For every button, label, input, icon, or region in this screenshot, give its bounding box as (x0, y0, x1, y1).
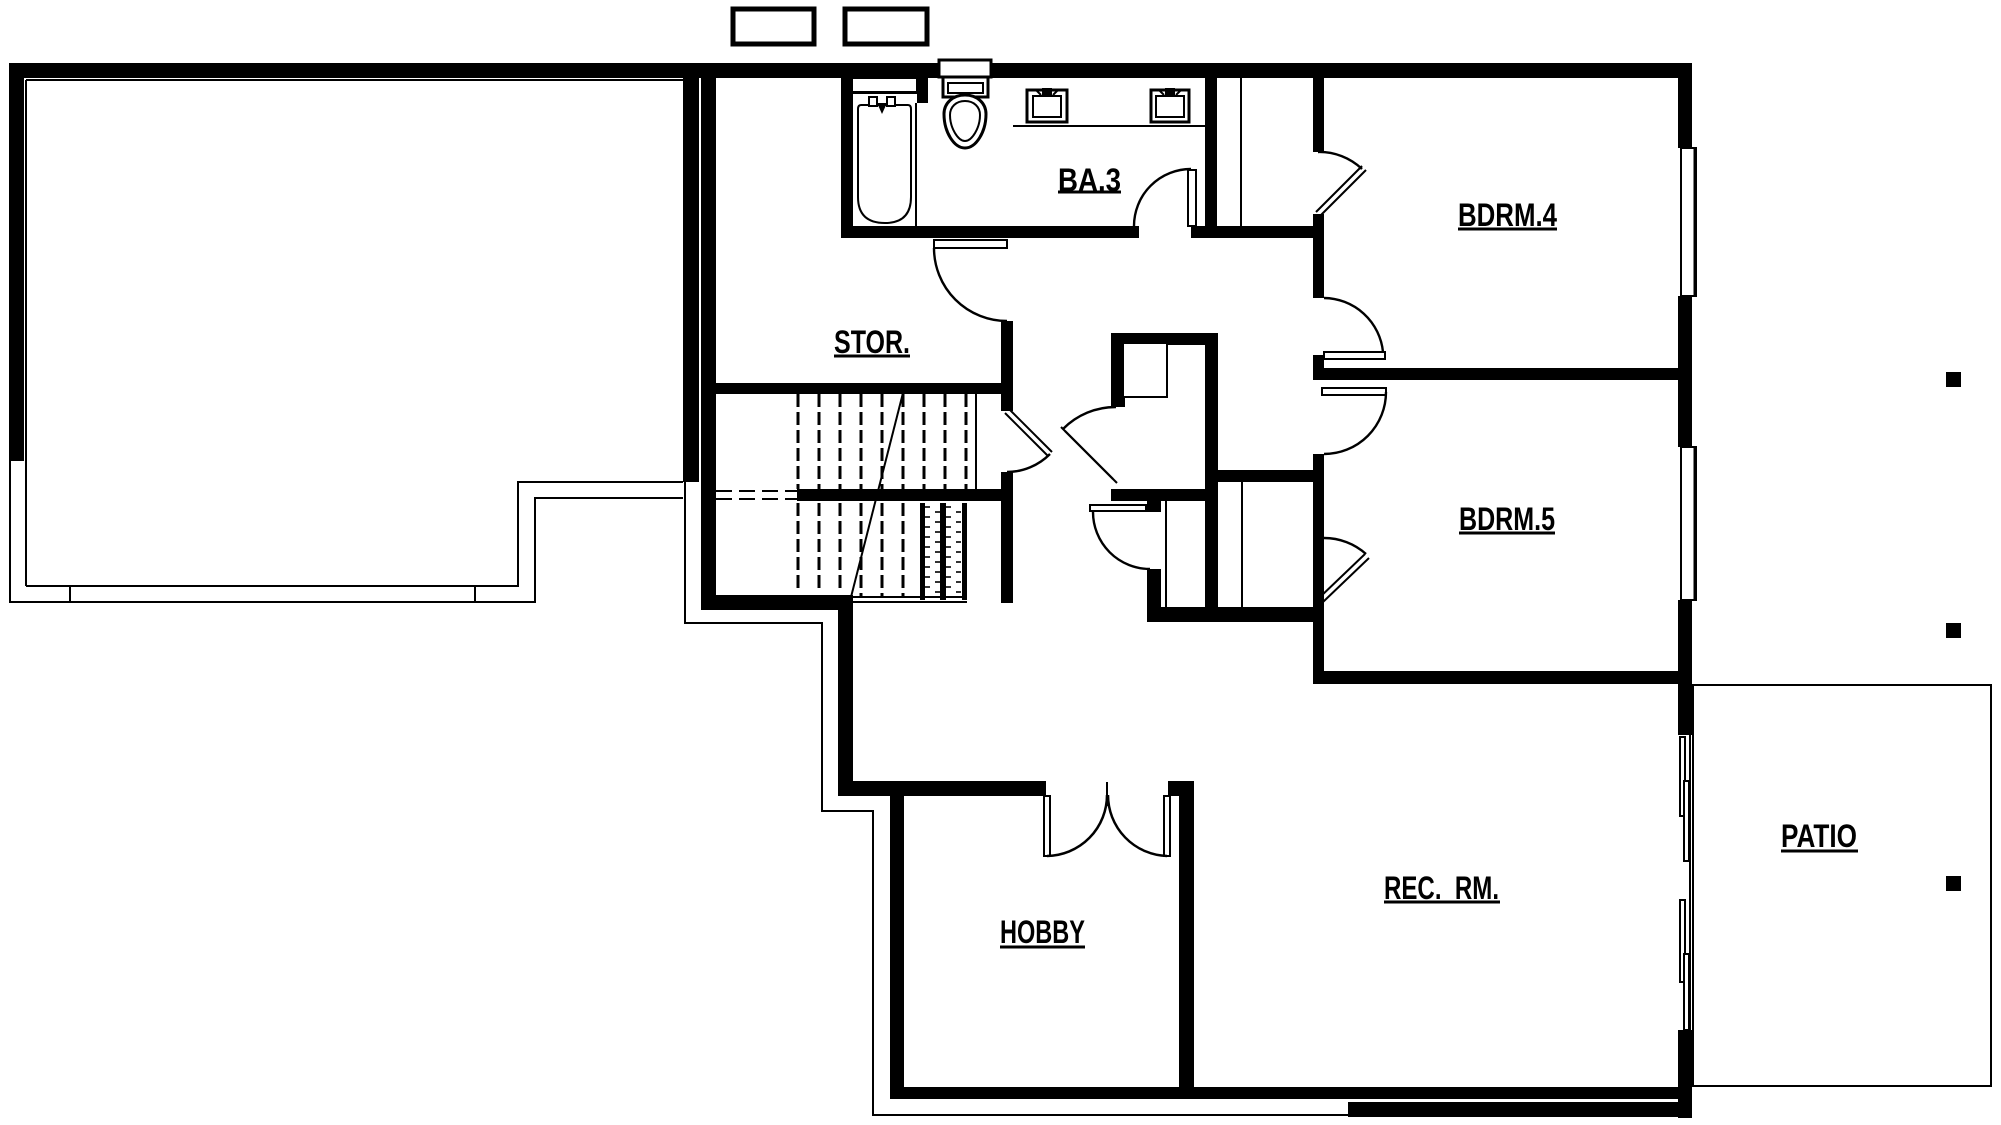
svg-text:PATIO: PATIO (1781, 818, 1857, 854)
svg-text:HOBBY: HOBBY (1000, 914, 1085, 950)
